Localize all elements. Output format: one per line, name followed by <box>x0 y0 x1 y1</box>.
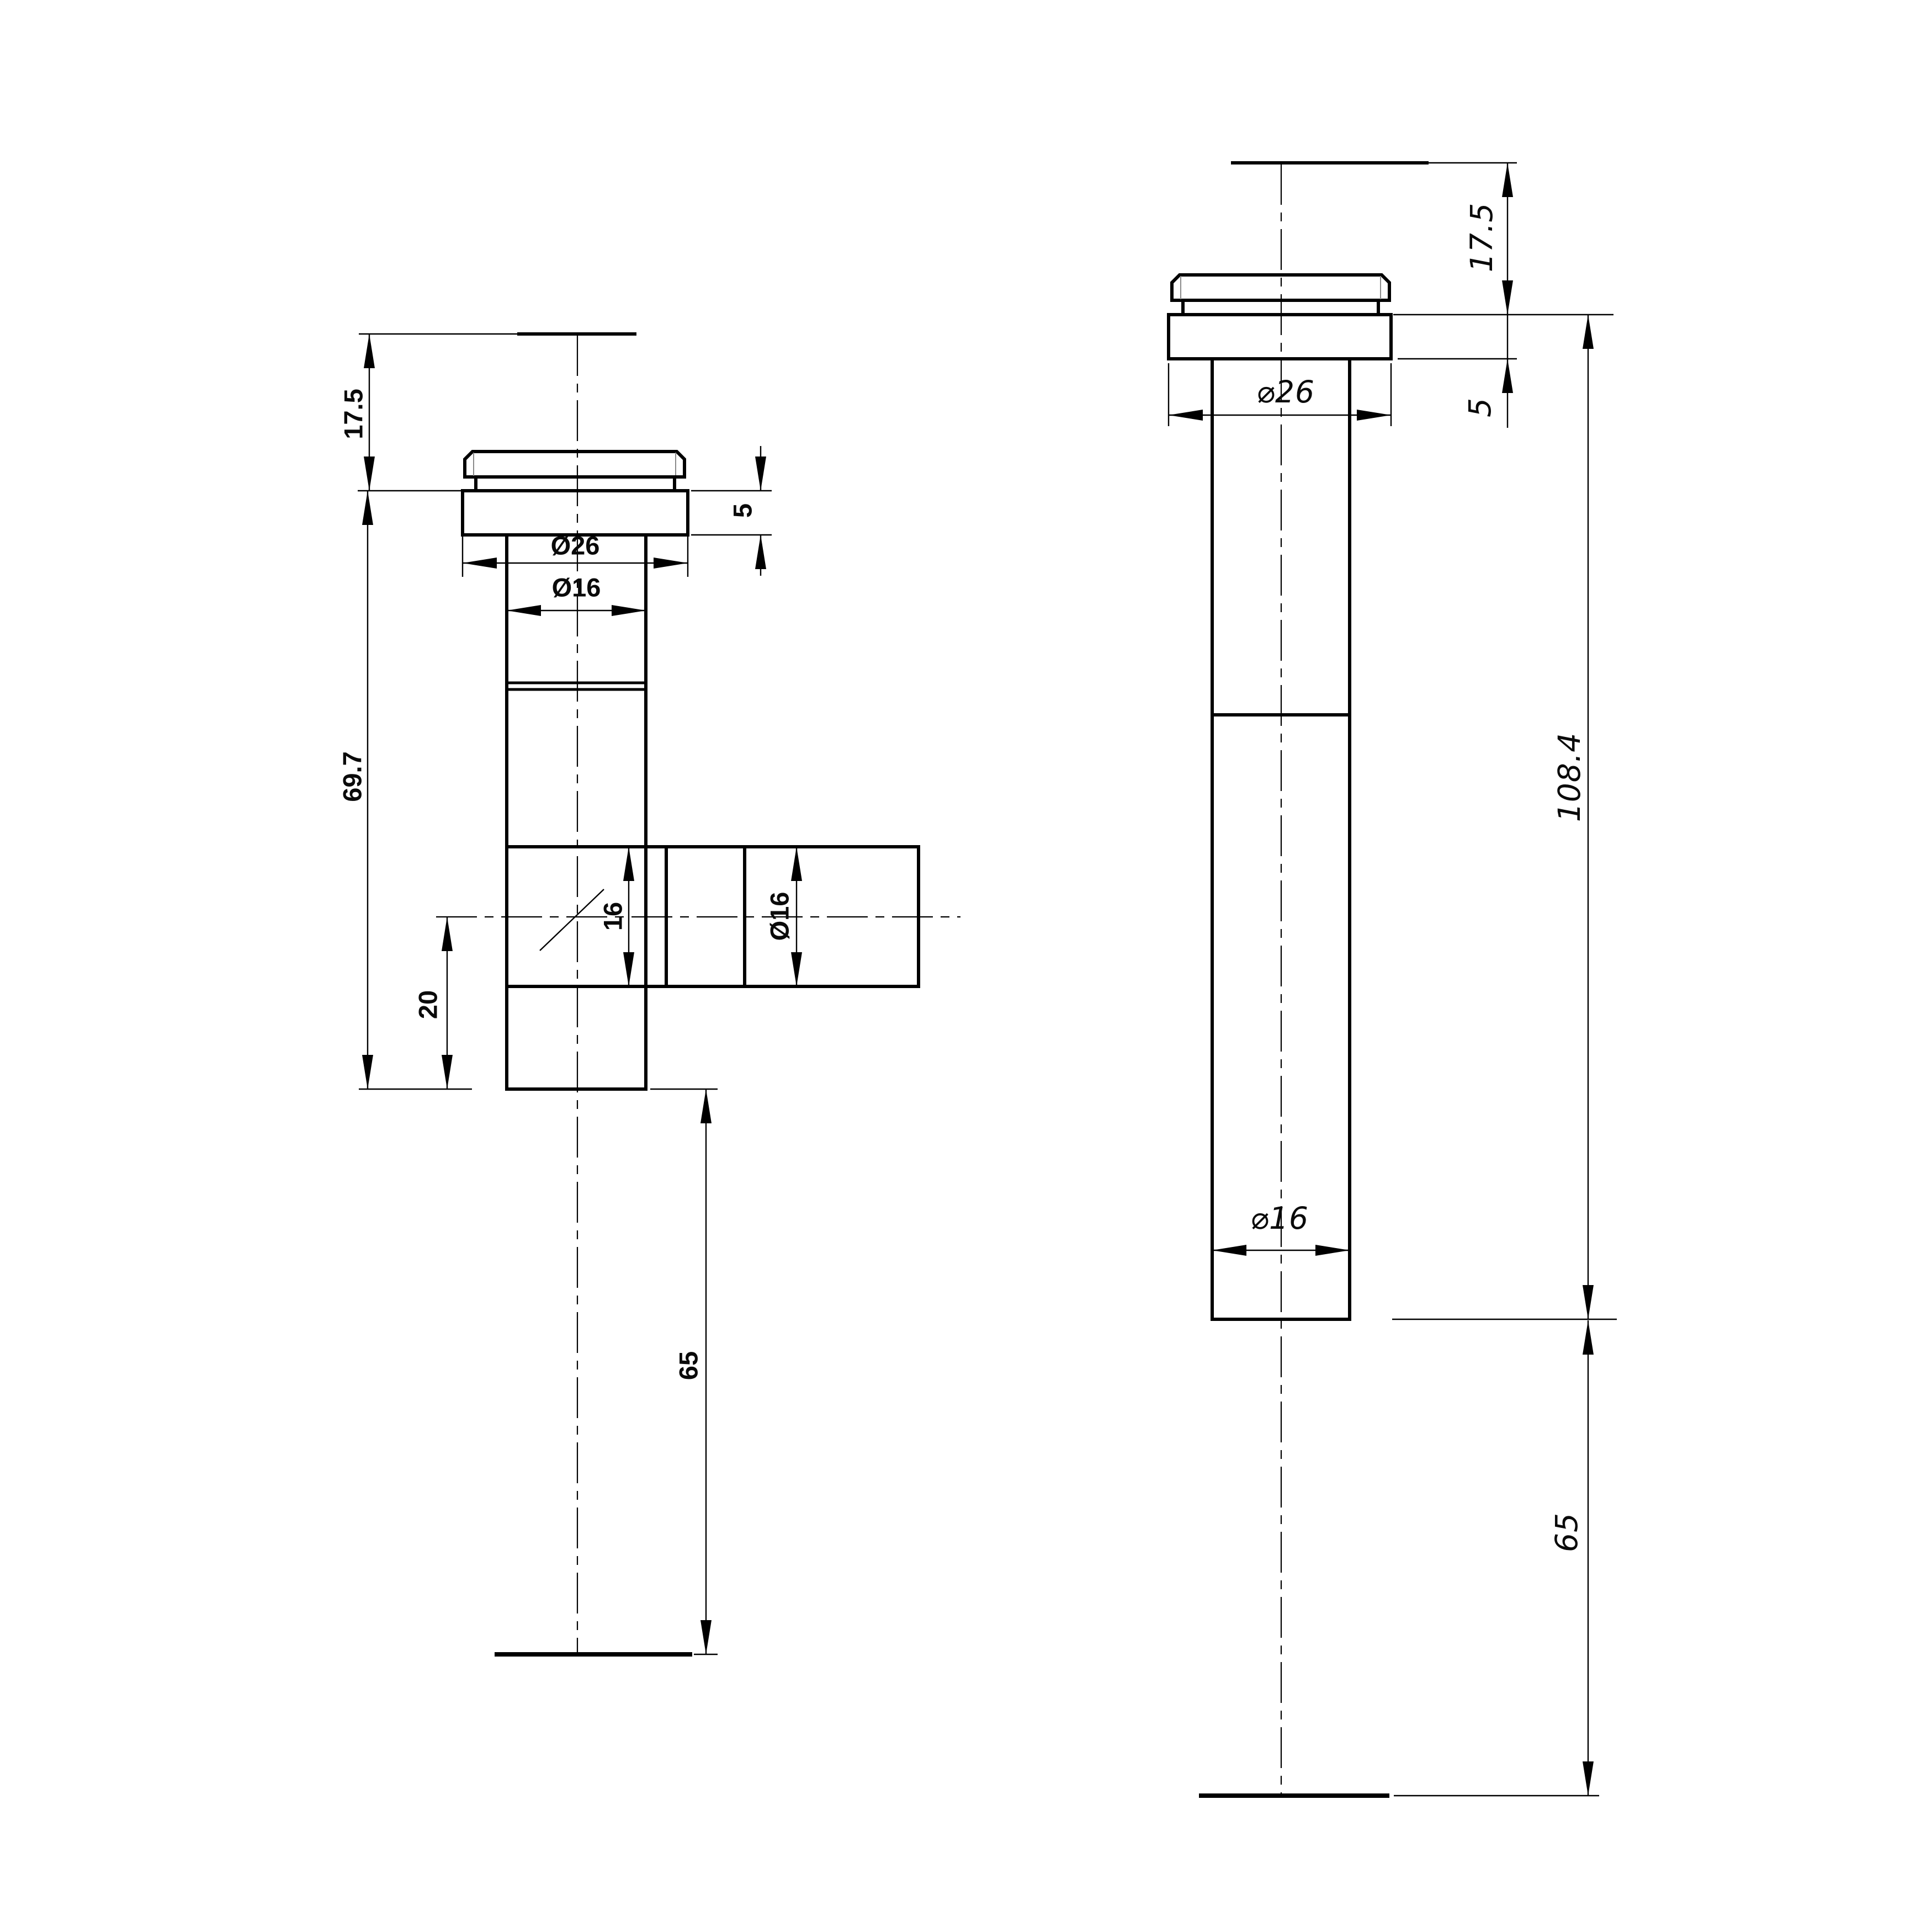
left-dim-d26: Ø26 <box>463 531 688 577</box>
left-dim-17-5-label: 17.5 <box>339 389 368 439</box>
left-dim-69-7-label: 69.7 <box>338 751 367 802</box>
right-dim-5: 5 <box>1462 315 1513 428</box>
right-dimensions: 17.5 5 ⌀26 <box>1169 163 1617 1796</box>
left-dim-69-7: 69.7 <box>338 491 374 1089</box>
right-dim-108-4-label: 108.4 <box>1552 733 1587 822</box>
right-dim-d16-label: ⌀16 <box>1250 1201 1309 1236</box>
left-dim-5-label: 5 <box>728 503 757 518</box>
technical-drawing: 17.5 69.7 20 <box>0 0 1932 1932</box>
left-dim-65-label: 65 <box>674 1351 703 1380</box>
right-dim-17-5: 17.5 <box>1464 163 1513 315</box>
right-dim-65-label: 65 <box>1549 1512 1584 1552</box>
left-view: 17.5 69.7 20 <box>338 334 961 1654</box>
left-dim-20-label: 20 <box>413 990 443 1019</box>
right-dim-108-4: 108.4 <box>1552 315 1594 1319</box>
right-dim-d16: ⌀16 <box>1212 1201 1350 1256</box>
left-dim-d26-label: Ø26 <box>551 531 600 560</box>
right-view: 17.5 5 ⌀26 <box>1169 163 1617 1796</box>
right-dim-5-label: 5 <box>1462 397 1498 417</box>
left-dim-d16: Ø16 <box>507 573 646 617</box>
left-dim-17-5: 17.5 <box>339 334 467 491</box>
right-dim-d26: ⌀26 <box>1169 363 1391 426</box>
right-dim-65: 65 <box>1392 1319 1617 1796</box>
left-dim-16-bore-label: 16 <box>598 902 628 931</box>
right-flange <box>1169 315 1391 359</box>
left-dim-5: 5 <box>691 446 772 576</box>
right-dim-17-5-label: 17.5 <box>1464 203 1499 272</box>
left-dim-65: 65 <box>359 1089 718 1654</box>
left-cap-outline <box>465 452 684 477</box>
left-dim-d16-label: Ø16 <box>552 573 601 602</box>
left-dimensions: 17.5 69.7 20 <box>338 334 803 1654</box>
left-neck <box>476 477 675 491</box>
drawing-canvas: 17.5 69.7 20 <box>0 0 1932 1932</box>
left-flange <box>463 491 688 535</box>
left-dim-branch-d16: Ø16 <box>765 847 803 986</box>
left-dim-branch-d16-label: Ø16 <box>765 892 794 941</box>
right-dim-d26-label: ⌀26 <box>1256 374 1315 410</box>
left-tube <box>507 535 646 1089</box>
left-diagonal-mark <box>540 889 604 951</box>
left-dim-16-bore: 16 <box>598 847 635 986</box>
left-dim-20: 20 <box>413 917 453 1089</box>
